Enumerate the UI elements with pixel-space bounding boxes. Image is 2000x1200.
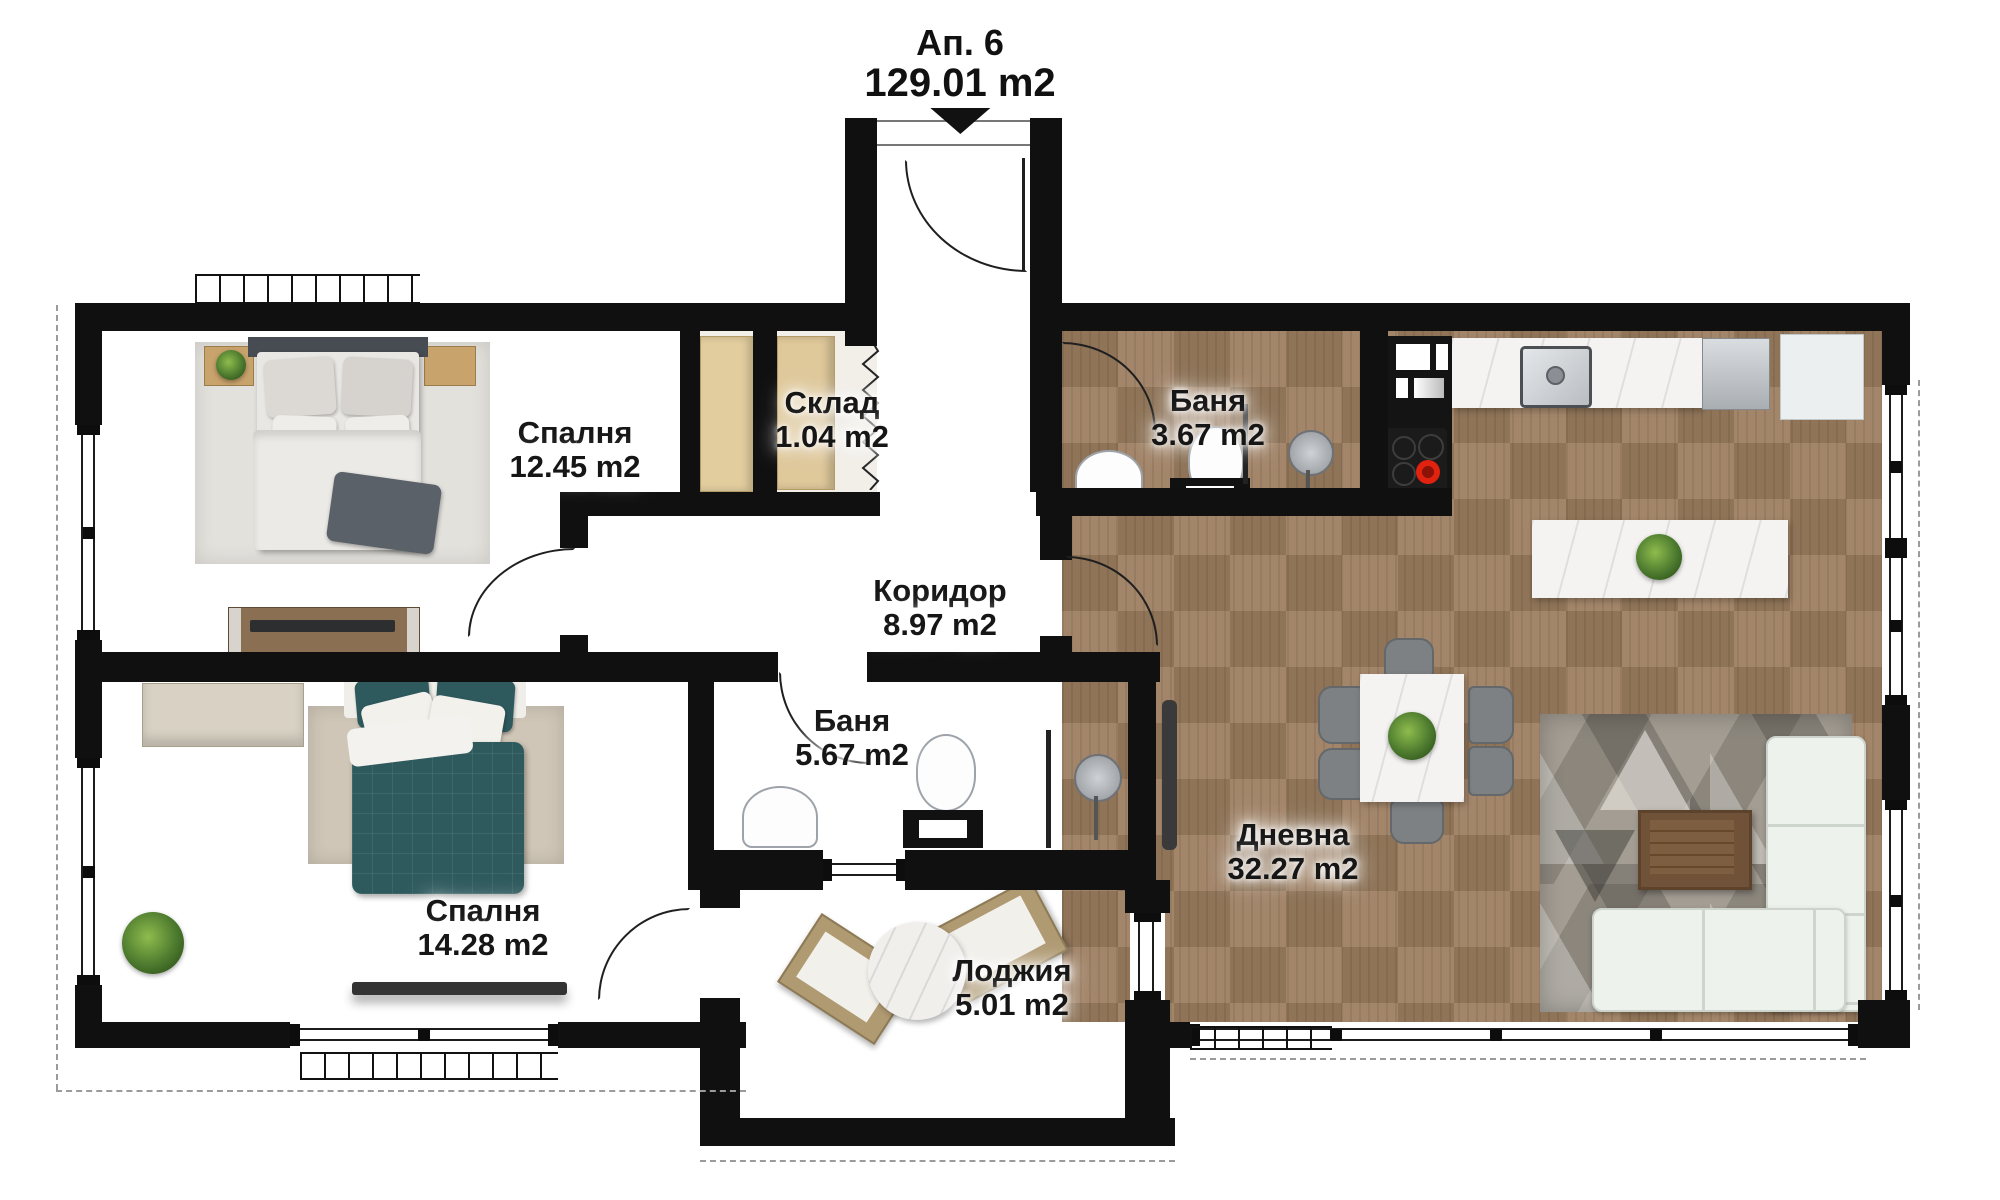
bedroom1-plant xyxy=(216,350,246,380)
radiator-hatch xyxy=(195,274,420,304)
room-name: Спалня xyxy=(418,894,549,928)
room-area: 3.67 m2 xyxy=(1151,418,1265,452)
facade-dashed-line xyxy=(56,1090,746,1092)
bath1-shower-head xyxy=(1288,430,1334,476)
bedroom2-loggia-door-gap xyxy=(688,908,740,998)
radiator-hatch xyxy=(1190,1026,1332,1050)
dining-chair xyxy=(1318,686,1364,744)
living-radiator xyxy=(1162,700,1177,850)
wall xyxy=(700,890,740,908)
room-area: 12.45 m2 xyxy=(510,450,641,484)
room-label-living: Дневна 32.27 m2 xyxy=(1228,818,1359,886)
dining-chair xyxy=(1468,746,1514,796)
room-area: 8.97 m2 xyxy=(873,608,1006,642)
bath2-cabinet-inner xyxy=(919,820,967,838)
window-right-living-1 xyxy=(1882,385,1910,548)
wall xyxy=(558,1022,746,1048)
wall xyxy=(680,303,700,516)
apartment-number: Ап. 6 xyxy=(864,24,1055,62)
bath2-partition xyxy=(1046,730,1051,848)
window-left-bedroom1 xyxy=(75,425,102,640)
wall xyxy=(688,850,823,890)
window-left-bedroom2 xyxy=(75,758,102,985)
room-name: Баня xyxy=(795,704,909,738)
kitchen-appliance-front xyxy=(1396,344,1430,370)
bedroom1-pillow xyxy=(263,356,337,419)
wall xyxy=(560,492,880,516)
room-area: 1.04 m2 xyxy=(775,420,889,454)
wall xyxy=(1156,1022,1190,1048)
wall xyxy=(75,1022,290,1048)
bedroom2-tv xyxy=(352,982,567,995)
wall xyxy=(1882,303,1910,385)
room-name: Баня xyxy=(1151,384,1265,418)
room-area: 32.27 m2 xyxy=(1228,852,1359,886)
dining-chair xyxy=(1390,800,1444,844)
coffee-table-slats xyxy=(1650,820,1734,874)
room-label-bath1: Баня 3.67 m2 xyxy=(1151,384,1265,452)
room-name: Дневна xyxy=(1228,818,1359,852)
sofa-seat xyxy=(1592,908,1846,1012)
wall xyxy=(1036,488,1452,516)
wall xyxy=(905,850,1156,890)
kitchen-hob-burner xyxy=(1392,462,1416,486)
room-label-loggia: Лоджия 5.01 m2 xyxy=(952,954,1071,1022)
kitchen-hob-burner-active xyxy=(1416,460,1440,484)
room-label-bedroom2: Спалня 14.28 m2 xyxy=(418,894,549,962)
wall xyxy=(1360,303,1388,516)
kitchen-fridge xyxy=(1780,334,1864,420)
entry-door-leaf xyxy=(1022,158,1025,270)
room-label-corridor: Коридор 8.97 m2 xyxy=(873,574,1006,642)
room-label-bedroom1: Спалня 12.45 m2 xyxy=(510,416,641,484)
bath2-shower-stem xyxy=(1094,796,1098,840)
kitchen-island-plant xyxy=(1636,534,1682,580)
window-bottom-bedroom2 xyxy=(290,1022,558,1048)
bath2-shower-head xyxy=(1074,754,1122,802)
facade-dashed-line xyxy=(1190,1058,1866,1060)
wall xyxy=(688,682,714,852)
dining-table-plant xyxy=(1388,712,1436,760)
kitchen-appliance-front xyxy=(1396,378,1408,398)
bedroom1-nightstand-right xyxy=(424,346,476,386)
floor-plan: Спалня 12.45 m2 Склад 1.04 m2 Баня 3.67 … xyxy=(0,0,2000,1200)
kitchen-dishwasher xyxy=(1702,338,1770,410)
wall xyxy=(1062,303,1910,331)
bedroom2-duvet xyxy=(352,742,524,894)
dining-chair xyxy=(1384,638,1434,678)
facade-dashed-line xyxy=(56,305,58,1090)
wall xyxy=(753,331,777,492)
bedroom2-plant xyxy=(122,912,184,974)
room-label-bath2: Баня 5.67 m2 xyxy=(795,704,909,772)
kitchen-appliance-front xyxy=(1414,378,1444,398)
storage-cabinet xyxy=(700,336,755,492)
bedroom2-wardrobe xyxy=(142,683,304,747)
room-name: Склад xyxy=(775,386,889,420)
radiator-hatch xyxy=(300,1052,558,1080)
bedroom1-tv xyxy=(250,620,395,632)
room-label-storage: Склад 1.04 m2 xyxy=(775,386,889,454)
wall xyxy=(560,635,588,652)
wall xyxy=(700,1118,1175,1146)
wall xyxy=(1040,492,1072,560)
dining-chair xyxy=(1318,748,1364,800)
wall xyxy=(75,652,778,682)
wall xyxy=(867,652,1160,682)
window-loggia-right xyxy=(1130,913,1165,1000)
wall xyxy=(845,118,877,346)
room-area: 5.01 m2 xyxy=(952,988,1071,1022)
kitchen-faucet xyxy=(1546,366,1565,385)
room-name: Лоджия xyxy=(952,954,1071,988)
kitchen-hob-burner xyxy=(1418,434,1444,460)
kitchen-hob-burner xyxy=(1392,436,1416,460)
room-name: Коридор xyxy=(873,574,1006,608)
bedroom1-pillow xyxy=(341,356,414,418)
bath2-toilet xyxy=(916,734,976,812)
wall xyxy=(1128,658,1156,850)
living-rug-triangle xyxy=(1600,730,1690,810)
wall xyxy=(1030,118,1062,492)
apartment-total-area: 129.01 m2 xyxy=(864,62,1055,104)
room-area: 14.28 m2 xyxy=(418,928,549,962)
living-rug-triangle xyxy=(1555,830,1635,902)
wall xyxy=(1882,705,1910,800)
facade-dashed-line xyxy=(1918,380,1920,1010)
wall xyxy=(1858,1000,1910,1048)
entrance-threshold xyxy=(877,144,1030,146)
wall xyxy=(560,516,588,548)
entrance-arrow-icon xyxy=(930,108,990,134)
wall xyxy=(75,303,102,425)
bedroom1-throw-blanket xyxy=(326,471,443,555)
plan-title: Ап. 6 129.01 m2 xyxy=(864,24,1055,134)
loggia-round-table xyxy=(868,922,966,1020)
wall xyxy=(1125,880,1170,913)
window-right-living-2 xyxy=(1882,548,1910,705)
room-name: Спалня xyxy=(510,416,641,450)
window-right-living-3 xyxy=(1882,800,1910,1000)
kitchen-appliance-front xyxy=(1436,344,1448,370)
facade-dashed-line xyxy=(700,1160,1175,1162)
bath2-sink xyxy=(742,786,818,848)
room-area: 5.67 m2 xyxy=(795,738,909,772)
wall xyxy=(75,303,845,331)
dining-chair xyxy=(1468,686,1514,744)
window-bath2-loggia xyxy=(823,855,905,885)
